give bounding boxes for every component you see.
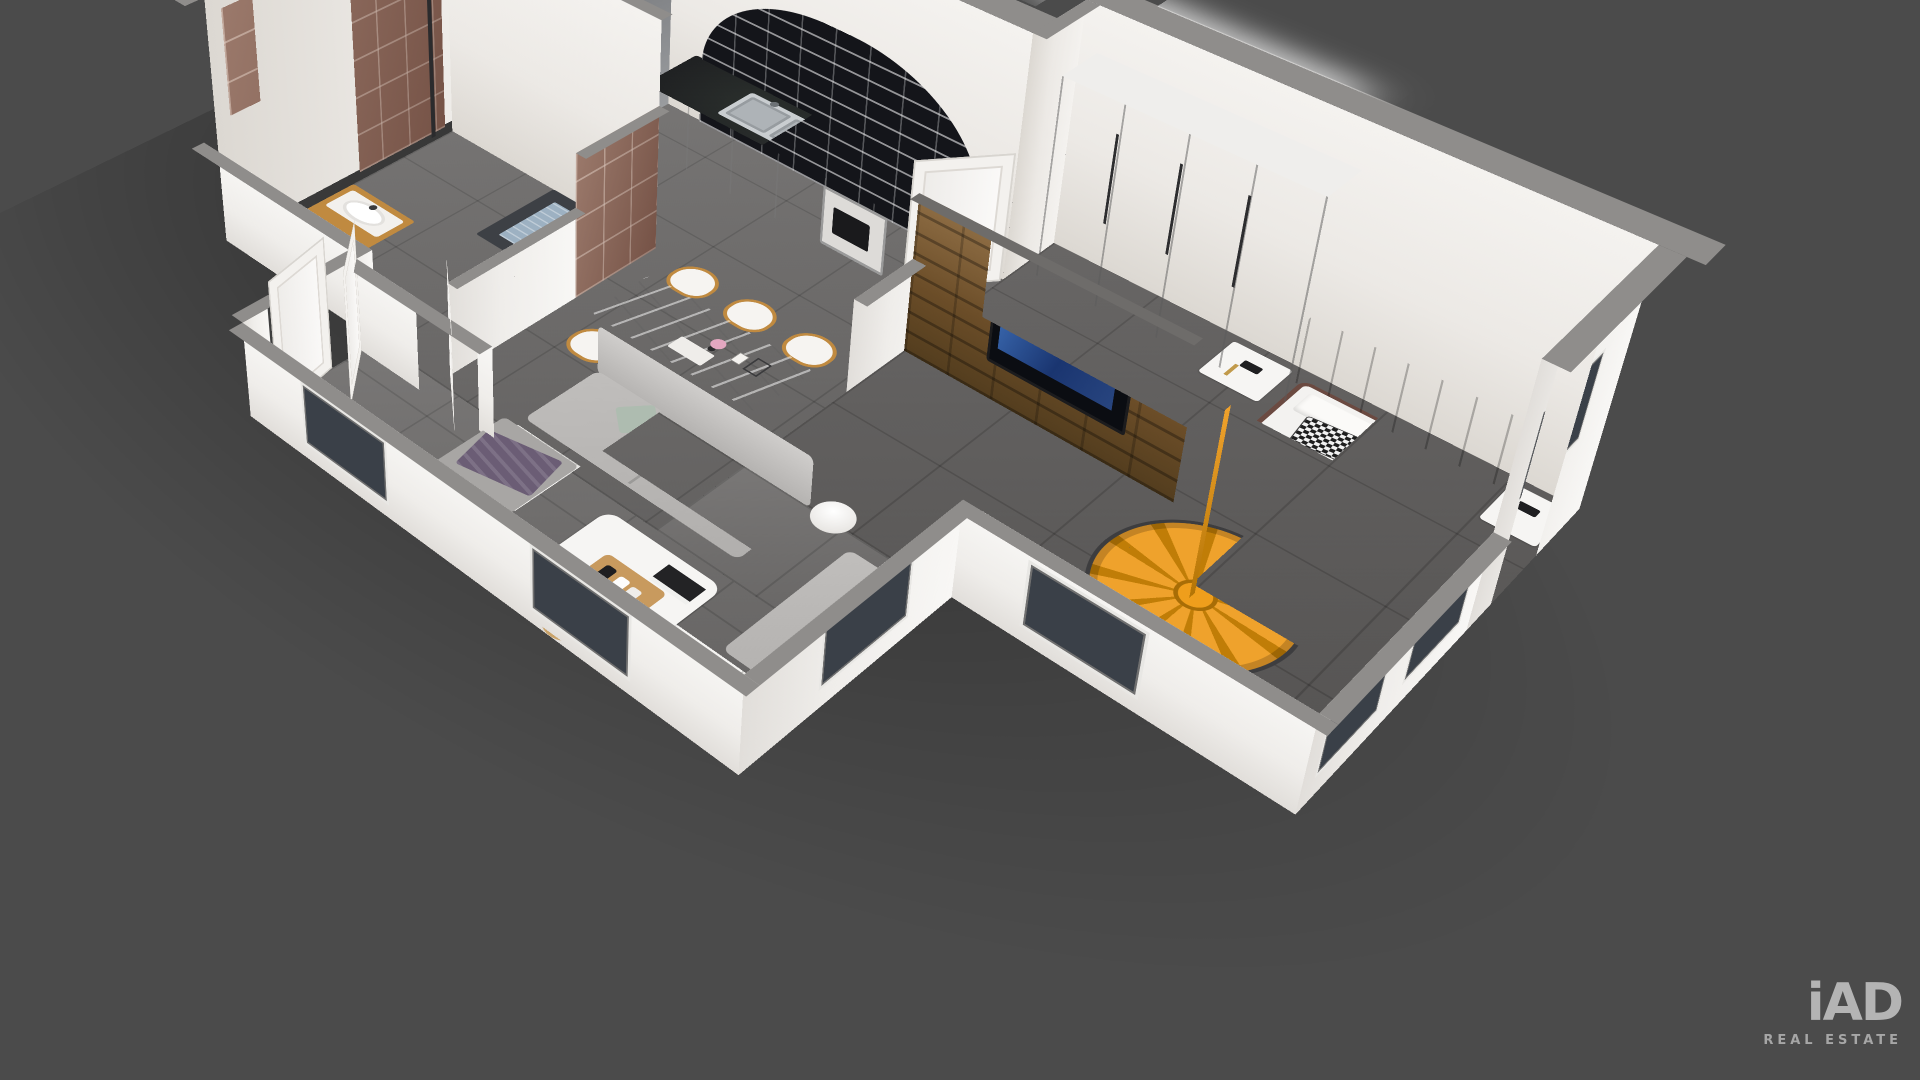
oven-window bbox=[832, 207, 870, 252]
sink-basin-left bbox=[725, 97, 792, 134]
lantern-decor bbox=[742, 358, 772, 377]
sofa-pillow-sage bbox=[615, 405, 659, 433]
perspective-wrapper bbox=[0, 0, 1920, 1080]
sofa-seat-split bbox=[628, 457, 667, 484]
flower-vase bbox=[707, 337, 730, 351]
candle-decor bbox=[730, 352, 750, 365]
render-canvas: iAD REAL ESTATE bbox=[0, 0, 1920, 1080]
table-runner bbox=[667, 336, 715, 366]
wardrobe-handle bbox=[1232, 195, 1252, 288]
brand-logo-text: iAD bbox=[1763, 980, 1902, 1027]
tv-screen bbox=[998, 293, 1121, 411]
wardrobe-handle bbox=[1103, 134, 1119, 225]
brand-logo: iAD REAL ESTATE bbox=[1763, 980, 1902, 1048]
wardrobe-handle bbox=[1165, 163, 1183, 255]
brand-logo-tagline: REAL ESTATE bbox=[1763, 1033, 1902, 1048]
